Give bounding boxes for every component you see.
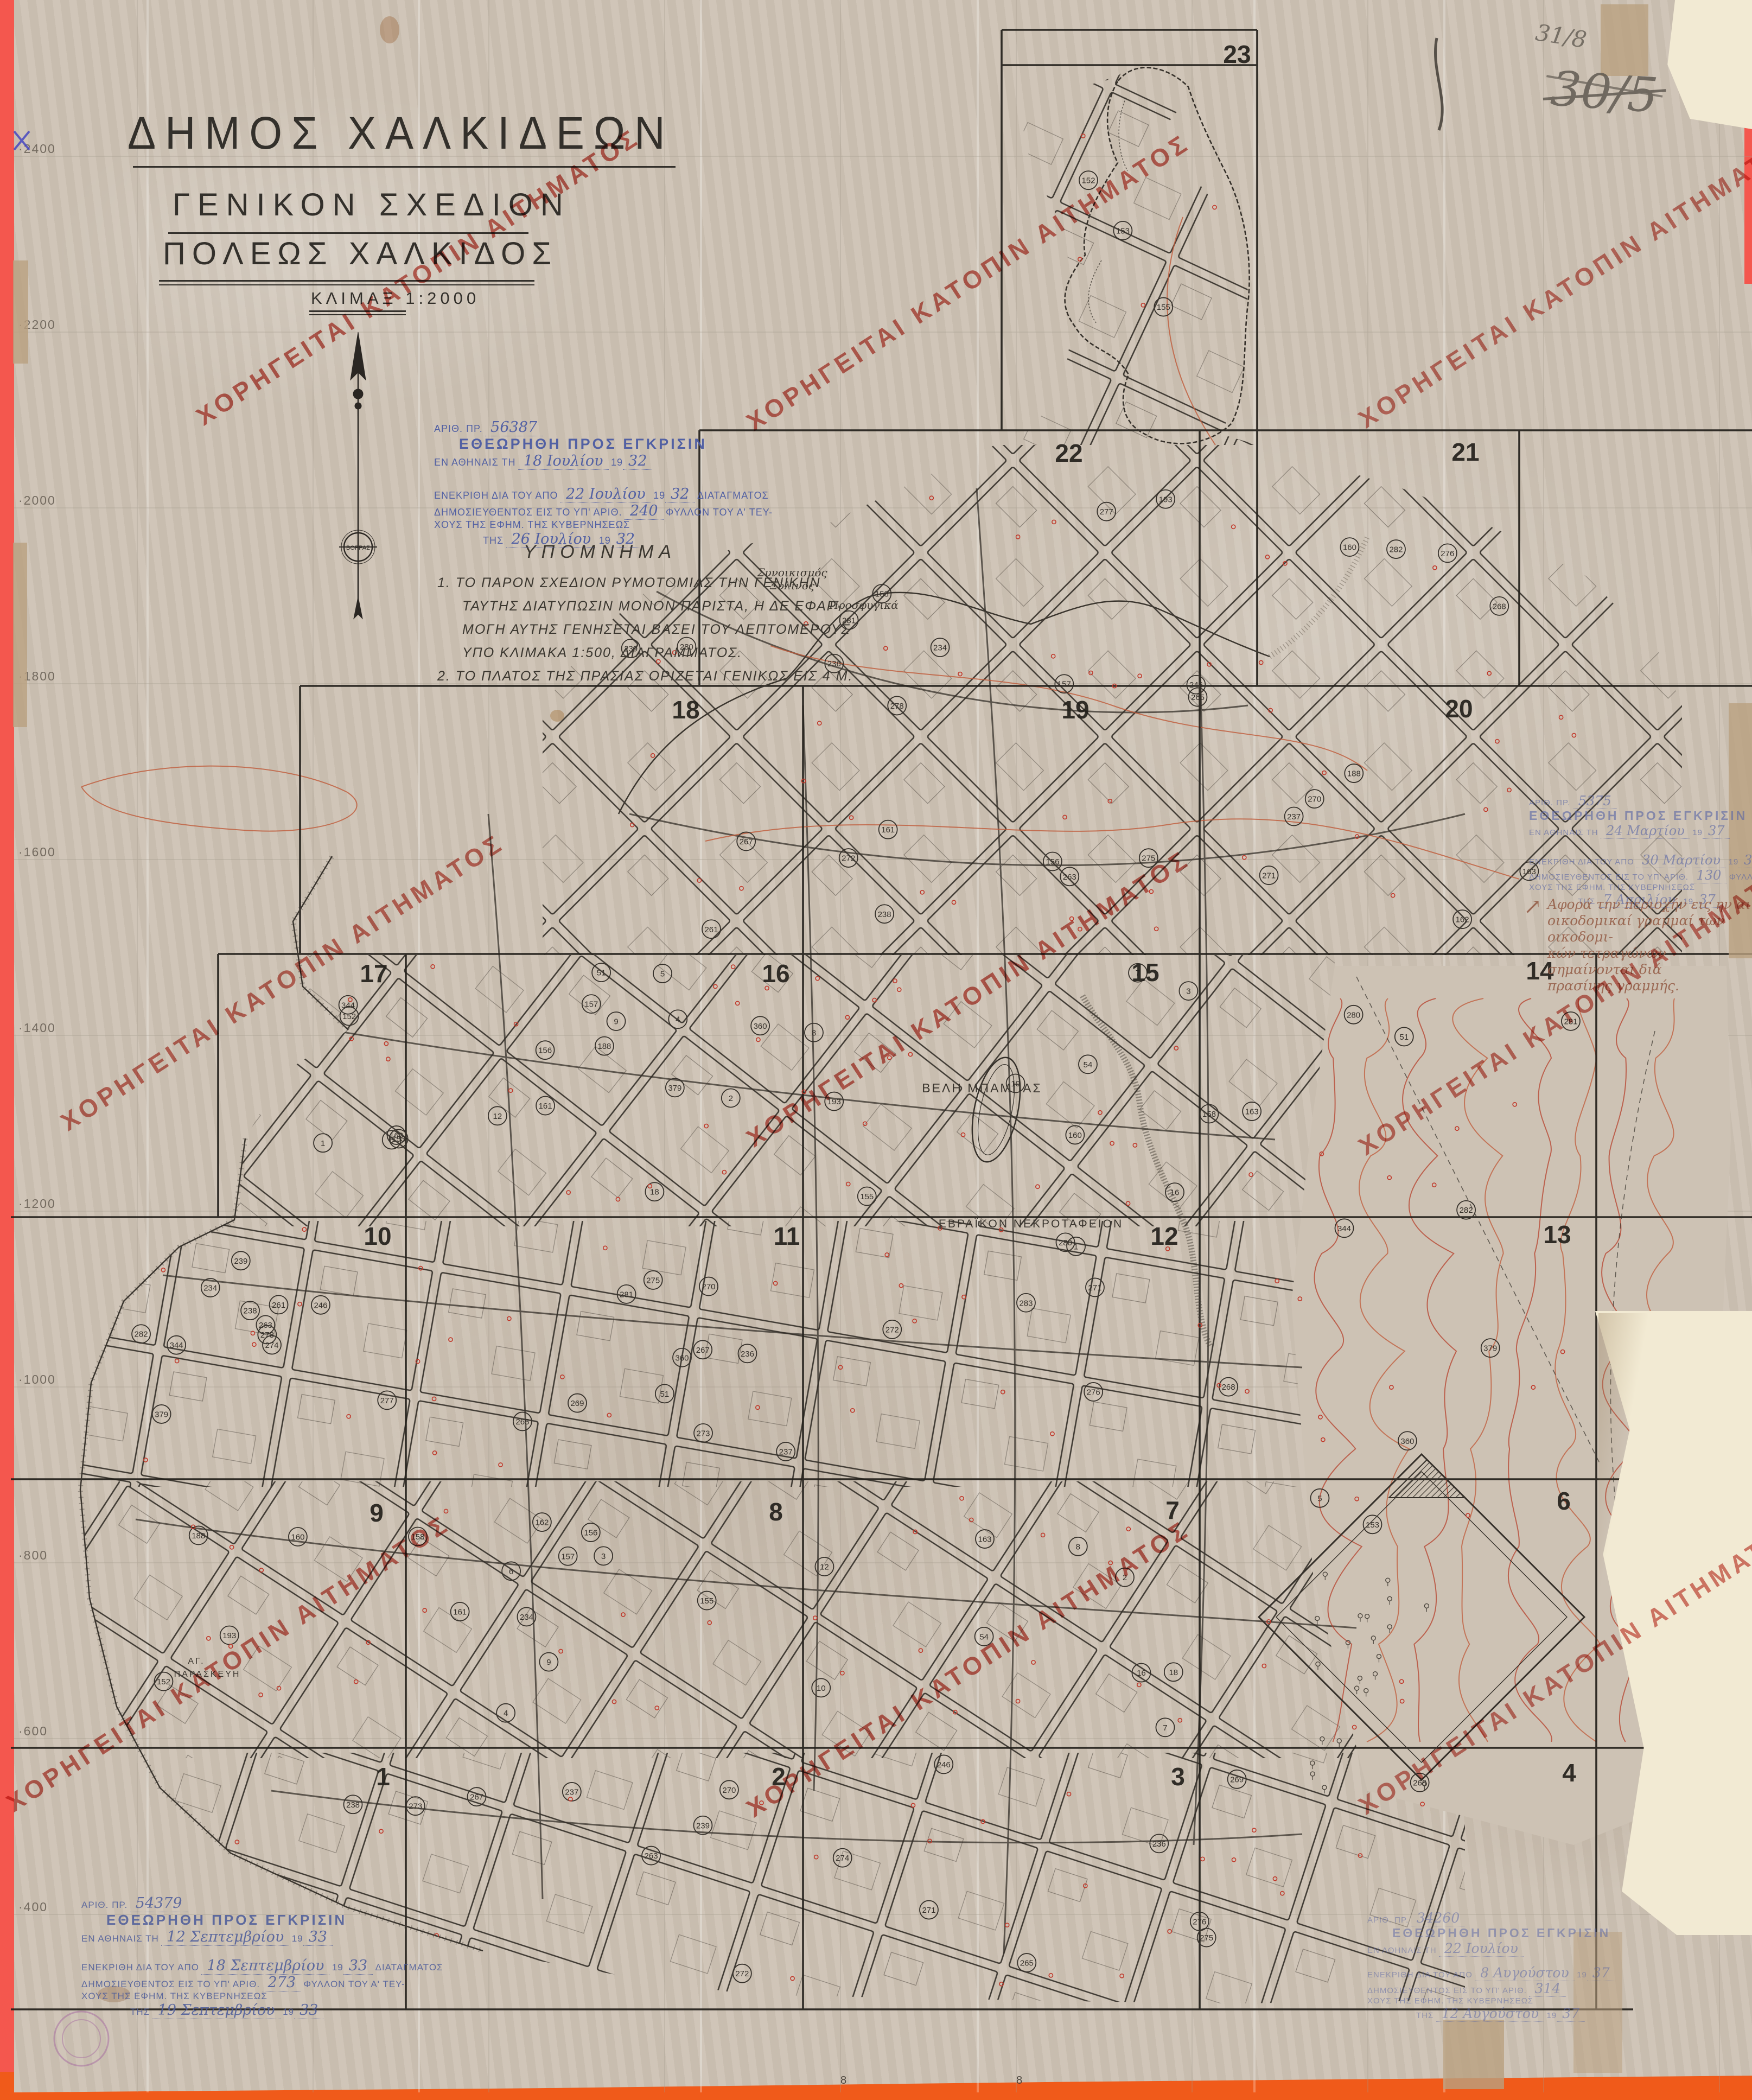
svg-text:344: 344 — [170, 1341, 183, 1350]
svg-text:278: 278 — [890, 702, 904, 711]
sheet-number: 20 — [1445, 695, 1473, 723]
stamp-number-label: ΑΡΙΘ. ΠΡ. — [434, 423, 483, 434]
stamp-sheet-label: ΦΥΛΛΟΝ ΤΟΥ Α' ΤΕΥ- — [666, 507, 773, 518]
svg-text:275: 275 — [1200, 1933, 1213, 1943]
stamp-review-date: 18 Ιουλίου — [518, 453, 609, 470]
stamp-approved-label: ΕΝΕΚΡΙΘΗ ΔΙΑ ΤΟΥ ΑΠΟ — [1529, 857, 1634, 867]
legend-line: ΜΟΓΗ ΑΥΤΗΣ ΓΕΝΗΣΕΤΑΙ ΒΑΣΕΙ ΤΟΥ ΛΕΠΤΟΜΕΡΟ… — [437, 618, 763, 641]
svg-text:246: 246 — [314, 1301, 327, 1310]
svg-text:155: 155 — [860, 1192, 874, 1201]
subtitle2-underline — [159, 280, 534, 282]
sheet-number: 3 — [1171, 1762, 1185, 1791]
svg-text:237: 237 — [565, 1787, 578, 1797]
svg-text:155: 155 — [700, 1596, 713, 1606]
sheet-number: 6 — [1557, 1487, 1571, 1515]
svg-text:272: 272 — [735, 1969, 749, 1978]
stamp-century: 19 — [611, 457, 623, 468]
stamp-date-label: ΤΗΣ — [1416, 2011, 1434, 2020]
stamp-review-year: 37 — [1703, 823, 1730, 839]
sheet-number: 17 — [360, 959, 387, 988]
svg-text:237: 237 — [1287, 812, 1301, 822]
svg-text:8: 8 — [812, 1028, 816, 1038]
svg-text:379: 379 — [668, 1084, 681, 1093]
svg-text:5: 5 — [660, 970, 665, 979]
stamp-century: 19 — [292, 1933, 303, 1944]
stamp-date-label: ΤΗΣ — [483, 535, 504, 546]
stamp-gazette-no: 240 — [625, 502, 664, 520]
svg-text:268: 268 — [1222, 1383, 1235, 1392]
svg-text:276: 276 — [1193, 1917, 1206, 1926]
grid-coordinate-label: ·1400 — [18, 1021, 56, 1035]
stamp-gazette-label: ΧΟΥΣ ΤΗΣ ΕΦΗΜ. ΤΗΣ ΚΥΒΕΡΝΗΣΕΩΣ — [1529, 883, 1746, 892]
legend-line: ΥΠΟ ΚΛΙΜΑΚΑ 1:500, ΔΙΑΓΡΑΜΜΑΤΟΣ. — [437, 641, 763, 665]
svg-text:16: 16 — [1137, 1669, 1146, 1678]
stamp-gazette-date: 19 Σεπτεμβρίου — [152, 2002, 281, 2019]
stamp-decree-date: 8 Αυγούστου — [1475, 1965, 1574, 1981]
svg-text:379: 379 — [1483, 1344, 1497, 1353]
sheet-number: 15 — [1131, 958, 1159, 987]
svg-text:239: 239 — [696, 1821, 710, 1830]
svg-text:265: 265 — [1191, 693, 1205, 702]
svg-text:273: 273 — [782, 501, 795, 510]
svg-text:157: 157 — [584, 1000, 598, 1009]
stamp-gazette-label: ΧΟΥΣ ΤΗΣ ΕΦΗΜ. ΤΗΣ ΚΥΒΕΡΝΗΣΕΩΣ — [434, 519, 684, 531]
svg-text:193: 193 — [1159, 495, 1173, 504]
sheet-number: 11 — [774, 1222, 800, 1250]
svg-text:161: 161 — [453, 1608, 467, 1617]
svg-text:163: 163 — [978, 1535, 991, 1544]
sheet-number: 22 — [1055, 439, 1082, 467]
svg-text:156: 156 — [1046, 857, 1059, 867]
approval-stamp-right: ΑΡΙΘ. ΠΡ. 5375 ΕΘΕΩΡΗΘΗ ΠΡΟΣ ΕΓΚΡΙΣΙΝ ΕΝ… — [1529, 793, 1746, 907]
stamp-gazette-no: 314 — [1529, 1981, 1566, 1997]
tape-patch — [13, 260, 28, 364]
svg-text:261: 261 — [483, 1975, 496, 1984]
svg-text:360: 360 — [1400, 1437, 1414, 1446]
stamp-review-date: 22 Ιουλίου — [1439, 1940, 1524, 1957]
sheet-number: 8 — [769, 1498, 783, 1526]
svg-text:4: 4 — [676, 1015, 680, 1024]
tape-patch — [13, 543, 27, 727]
svg-text:263: 263 — [1063, 873, 1076, 882]
svg-text:157: 157 — [1057, 680, 1071, 689]
svg-text:153: 153 — [1116, 226, 1130, 236]
stamp-reviewed-label: ΕΘΕΩΡΗΘΗ ΠΡΟΣ ΕΓΚΡΙΣΙΝ — [1367, 1926, 1622, 1940]
svg-text:239: 239 — [234, 1257, 247, 1266]
svg-text:280: 280 — [1347, 1010, 1360, 1020]
stamp-gazette-no: 273 — [263, 1974, 302, 1991]
svg-text:268: 268 — [1493, 602, 1506, 611]
svg-text:267: 267 — [470, 1793, 483, 1802]
stamp-approved-label: ΕΝΕΚΡΙΘΗ ΔΙΑ ΤΟΥ ΑΠΟ — [1367, 1970, 1473, 1980]
svg-text:18: 18 — [650, 1188, 659, 1197]
stamp-century: 19 — [1692, 828, 1703, 837]
svg-text:282: 282 — [1389, 545, 1403, 555]
svg-text:236: 236 — [1152, 1840, 1166, 1849]
sheet-number: 21 — [1451, 438, 1479, 466]
svg-text:188: 188 — [597, 1042, 611, 1051]
svg-text:261: 261 — [272, 1301, 285, 1310]
svg-text:9: 9 — [546, 1658, 551, 1667]
compass-label: ΒΟΡΡΑΣ — [346, 545, 370, 551]
stamp-number-label: ΑΡΙΘ. ΠΡ. — [1529, 798, 1570, 807]
stamp-century: 19 — [599, 535, 611, 546]
svg-text:12: 12 — [820, 1563, 829, 1572]
stamp-gazette-date: 26 Ιουλίου — [506, 531, 597, 548]
stamp-decree-year: 37 — [1738, 852, 1752, 868]
stamp-gazette-label: ΧΟΥΣ ΤΗΣ ΕΦΗΜ. ΤΗΣ ΚΥΒΕΡΝΗΣΕΩΣ — [81, 1991, 353, 2002]
svg-text:156: 156 — [538, 1046, 552, 1055]
svg-text:9: 9 — [614, 1017, 618, 1026]
svg-text:18: 18 — [1169, 1668, 1178, 1677]
sheet-number: 9 — [369, 1499, 384, 1527]
sheet-number: 23 — [1223, 40, 1251, 68]
svg-text:283: 283 — [1019, 1299, 1033, 1308]
stamp-century: 19 — [653, 490, 665, 501]
grid-coordinate-label: ·1200 — [18, 1197, 56, 1211]
svg-text:272: 272 — [885, 1325, 899, 1334]
svg-text:273: 273 — [409, 1802, 422, 1811]
svg-text:6: 6 — [509, 1567, 513, 1576]
legend-block: ΥΠΟΜΝΗΜΑ 1. ΤΟ ΠΑΡΟΝ ΣΧΕΔΙΟΝ ΡΥΜΟΤΟΜΙΑΣ … — [437, 542, 763, 688]
grid-coordinate-label: ·800 — [18, 1548, 48, 1562]
svg-text:271: 271 — [1262, 871, 1276, 881]
svg-text:7: 7 — [1163, 1723, 1167, 1733]
stamp-athens-label: ΕΝ ΑΘΗΝΑΙΣ ΤΗ — [434, 457, 515, 468]
svg-text:276: 276 — [1441, 549, 1454, 558]
svg-text:265: 265 — [1020, 1959, 1034, 1968]
svg-text:360: 360 — [675, 1353, 689, 1363]
svg-text:3: 3 — [601, 1552, 606, 1561]
grid-coordinate-label: 8 — [840, 2074, 846, 2086]
svg-text:188: 188 — [1347, 769, 1361, 779]
grid-coordinate-label: ·1600 — [18, 845, 56, 859]
stamp-reviewed-label: ΕΘΕΩΡΗΘΗ ΠΡΟΣ ΕΓΚΡΙΣΙΝ — [81, 1912, 353, 1929]
subtitle2-underline-2 — [159, 284, 534, 285]
svg-text:4: 4 — [504, 1709, 508, 1718]
svg-text:274: 274 — [836, 1854, 849, 1863]
pencil-annotation-crossed-out: 30/5 — [1549, 60, 1660, 124]
stamp-decree-year: 37 — [1587, 1965, 1615, 1981]
north-arrow: ΒΟΡΡΑΣ — [339, 332, 377, 619]
stamp-number-value: 34260 — [1411, 1910, 1466, 1926]
legend-line: ΤΑΥΤΗΣ ΔΙΑΤΥΠΩΣΙΝ ΜΟΝΟΝ ΠΑΡΙΣΤΑ, Η ΔΕ ΕΦ… — [437, 595, 763, 618]
sheet-number: 19 — [1061, 696, 1089, 724]
grid-coordinate-label: ·1000 — [18, 1372, 56, 1386]
svg-text:360: 360 — [754, 1022, 767, 1031]
sheet-number: 12 — [1150, 1222, 1178, 1250]
svg-text:277: 277 — [1100, 507, 1113, 517]
svg-text:267: 267 — [696, 1346, 710, 1355]
svg-text:160: 160 — [291, 1532, 304, 1542]
svg-text:160: 160 — [1068, 1131, 1082, 1140]
svg-text:3: 3 — [1186, 987, 1190, 996]
svg-text:153: 153 — [1366, 1520, 1379, 1530]
svg-text:344: 344 — [1337, 1224, 1351, 1233]
svg-text:51: 51 — [597, 969, 606, 978]
stamp-number-value: 56387 — [485, 419, 543, 436]
svg-text:152: 152 — [342, 1012, 356, 1021]
svg-text:281: 281 — [620, 1290, 633, 1299]
svg-text:277: 277 — [380, 1396, 394, 1405]
svg-text:188: 188 — [192, 1531, 205, 1541]
stamp-century: 19 — [1577, 1970, 1587, 1980]
stamp-athens-label: ΕΝ ΑΘΗΝΑΙΣ ΤΗ — [1529, 828, 1598, 837]
svg-text:238: 238 — [878, 910, 891, 919]
svg-text:12: 12 — [493, 1112, 502, 1121]
svg-text:51: 51 — [660, 1390, 670, 1399]
map-label: ΒΕΛΗ ΜΠΑΜΠΑΣ — [922, 1081, 1042, 1095]
stamp-review-year: 33 — [303, 1929, 333, 1946]
stamp-gazette-year: 32 — [611, 531, 640, 548]
svg-text:270: 270 — [702, 1282, 716, 1291]
svg-text:51: 51 — [1399, 1033, 1409, 1042]
svg-text:234: 234 — [203, 1283, 217, 1293]
svg-text:272: 272 — [842, 854, 855, 863]
stamp-gazette-year: 33 — [294, 2002, 323, 2019]
svg-text:16: 16 — [1170, 1188, 1180, 1198]
stamp-date-label: ΤΗΣ — [130, 2007, 150, 2017]
grid-coordinate-label: ·2000 — [18, 493, 56, 507]
svg-text:162: 162 — [1456, 915, 1469, 925]
stamp-gazette-no: 130 — [1691, 868, 1726, 883]
approval-stamp-bottom-right: ΑΡΙΘ. ΠΡ. 34260 ΕΘΕΩΡΗΘΗ ΠΡΟΣ ΕΓΚΡΙΣΙΝ Ε… — [1367, 1910, 1622, 2021]
svg-text:234: 234 — [933, 644, 947, 653]
svg-text:271: 271 — [1088, 1283, 1101, 1293]
svg-text:155: 155 — [1157, 303, 1170, 312]
sheet-number: 13 — [1543, 1220, 1571, 1249]
svg-text:269: 269 — [570, 1399, 584, 1408]
svg-text:162: 162 — [535, 1518, 549, 1528]
svg-text:275: 275 — [646, 1276, 660, 1285]
stamp-decree-year: 33 — [343, 1957, 373, 1975]
svg-text:162: 162 — [390, 1131, 403, 1140]
sheet-number: 1 — [376, 1762, 390, 1791]
stamp-sheet-label: ΦΥΛΛΟΝ ΤΟΥ Α' ΤΕΥ- — [304, 1979, 405, 1989]
svg-text:5: 5 — [1317, 1494, 1322, 1503]
stamp-gazette-label: ΧΟΥΣ ΤΗΣ ΕΦΗΜ. ΤΗΣ ΚΥΒΕΡΝΗΣΕΩΣ — [1367, 1996, 1622, 2006]
svg-text:234: 234 — [520, 1613, 533, 1622]
stamp-number-label: ΑΡΙΘ. ΠΡ. — [81, 1900, 128, 1910]
approval-stamp-bottom-left: ΑΡΙΘ. ΠΡ. 54379 ΕΘΕΩΡΗΘΗ ΠΡΟΣ ΕΓΚΡΙΣΙΝ Ε… — [81, 1895, 353, 2019]
stamp-athens-label: ΕΝ ΑΘΗΝΑΙΣ ΤΗ — [81, 1933, 159, 1944]
svg-text:270: 270 — [1308, 795, 1321, 804]
stamp-number-value: 54379 — [130, 1895, 188, 1912]
note-arrow-icon: ↗ — [1524, 899, 1542, 915]
svg-text:273: 273 — [696, 1429, 710, 1438]
sheet-number: 4 — [1562, 1759, 1576, 1787]
grid-coordinate-label: 8 — [1016, 2074, 1022, 2086]
stamp-review-date: 24 Μαρτίου — [1601, 823, 1690, 839]
svg-text:246: 246 — [937, 1760, 951, 1770]
svg-text:158: 158 — [1202, 1110, 1216, 1119]
stamp-decree-year: 32 — [665, 486, 695, 503]
stamp-number-label: ΑΡΙΘ. ΠΡ. — [1367, 1916, 1409, 1925]
svg-text:237: 237 — [779, 1447, 793, 1456]
stamp-approved-label: ΕΝΕΚΡΙΘΗ ΔΙΑ ΤΟΥ ΑΠΟ — [434, 490, 558, 501]
svg-text:238: 238 — [346, 1800, 360, 1810]
svg-text:283: 283 — [778, 485, 792, 494]
tape-patch — [1443, 2020, 1504, 2089]
stamp-century: 19 — [1728, 857, 1738, 867]
svg-text:158: 158 — [875, 590, 889, 599]
svg-text:161: 161 — [881, 825, 895, 835]
svg-text:54: 54 — [1023, 373, 1033, 383]
stamp-published-label: ΔΗΜΟΣΙΕΥΘΕΝΤΟΣ ΕΙΣ ΤΟ ΥΠ' ΑΡΙΘ. — [1529, 873, 1689, 882]
svg-text:238: 238 — [244, 1307, 257, 1316]
stamp-reviewed-label: ΕΘΕΩΡΗΘΗ ΠΡΟΣ ΕΓΚΡΙΣΙΝ — [434, 436, 684, 453]
svg-text:276: 276 — [1087, 1388, 1100, 1397]
legend-line: 2. ΤΟ ΠΛΑΤΟΣ ΤΗΣ ΠΡΑΣΙΑΣ ΟΡΙΖΕΤΑΙ ΓΕΝΙΚΩ… — [437, 665, 763, 688]
map-label: ΕΒΡΑΪΚΟΝ ΝΕΚΡΟΤΑΦΕΙΟΝ — [939, 1218, 1123, 1230]
grid-coordinate-label: ·400 — [18, 1900, 48, 1914]
svg-text:163: 163 — [1245, 1108, 1259, 1117]
stamp-gazette-year: 37 — [1557, 2006, 1585, 2022]
scanned-map-page: 5415215315515615715816016116216318819323… — [0, 0, 1752, 2100]
svg-text:265: 265 — [515, 1417, 529, 1427]
stamp-decree-date: 30 Μαρτίου — [1636, 852, 1726, 868]
svg-text:236: 236 — [741, 1350, 754, 1359]
svg-text:282: 282 — [1460, 1206, 1473, 1215]
svg-text:161: 161 — [539, 1102, 552, 1111]
svg-text:263: 263 — [645, 1851, 658, 1861]
stamp-published-label: ΔΗΜΟΣΙΕΥΘΕΝΤΟΣ ΕΙΣ ΤΟ ΥΠ' ΑΡΙΘ. — [81, 1979, 260, 1989]
stamp-century: 19 — [283, 2007, 294, 2017]
stamp-approved-label: ΕΝΕΚΡΙΘΗ ΔΙΑ ΤΟΥ ΑΠΟ — [81, 1962, 199, 1972]
stamp-reviewed-label: ΕΘΕΩΡΗΘΗ ΠΡΟΣ ΕΓΚΡΙΣΙΝ — [1529, 809, 1746, 823]
stamp-gazette-date: 12 Αυγούστου — [1436, 2006, 1544, 2022]
stamp-century: 19 — [332, 1962, 343, 1972]
sheet-number: 10 — [364, 1222, 391, 1250]
svg-text:2: 2 — [729, 1094, 733, 1103]
grid-coordinate-label: ·600 — [18, 1724, 48, 1738]
svg-text:270: 270 — [722, 1786, 736, 1795]
stamp-review-date: 12 Σεπτεμβρίου — [161, 1929, 289, 1946]
stamp-review-year: 32 — [623, 453, 652, 470]
svg-text:271: 271 — [922, 1906, 935, 1915]
svg-text:278: 278 — [543, 1971, 557, 1981]
sheet-number: 18 — [672, 696, 699, 724]
svg-text:1: 1 — [1074, 1242, 1078, 1251]
svg-text:236: 236 — [827, 659, 841, 669]
stamp-decree-label: ΔΙΑΤΑΓΜΑΤΟΣ — [697, 490, 769, 501]
svg-text:54: 54 — [1084, 1060, 1093, 1070]
stamp-decree-date: 18 Σεπτεμβρίου — [201, 1957, 329, 1975]
svg-text:1: 1 — [321, 1139, 325, 1148]
legend-line: 1. ΤΟ ΠΑΡΟΝ ΣΧΕΔΙΟΝ ΡΥΜΟΤΟΜΙΑΣ ΤΗΝ ΓΕΝΙΚ… — [437, 571, 763, 595]
svg-text:282: 282 — [135, 1330, 148, 1339]
svg-text:269: 269 — [1230, 1775, 1244, 1784]
svg-text:278: 278 — [260, 1331, 274, 1340]
stamp-number-value: 5375 — [1573, 793, 1617, 809]
svg-text:267: 267 — [740, 837, 753, 847]
svg-text:193: 193 — [222, 1631, 236, 1640]
svg-text:379: 379 — [155, 1410, 168, 1419]
svg-text:8: 8 — [1076, 1542, 1080, 1551]
svg-text:160: 160 — [1343, 543, 1356, 552]
stamp-published-label: ΔΗΜΟΣΙΕΥΘΕΝΤΟΣ ΕΙΣ ΤΟ ΥΠ' ΑΡΙΘ. — [1367, 1986, 1527, 1995]
stamp-decree-date: 22 Ιουλίου — [560, 486, 651, 503]
stamp-published-label: ΔΗΜΟΣΙΕΥΘΕΝΤΟΣ ΕΙΣ ΤΟ ΥΠ' ΑΡΙΘ. — [434, 507, 622, 518]
sheet-number: 16 — [762, 959, 789, 988]
stamp-decree-label: ΔΙΑΤΑΓΜΑΤΟΣ — [375, 1962, 443, 1972]
stamp-athens-label: ΕΝ ΑΘΗΝΑΙΣ ΤΗ — [1367, 1946, 1437, 1955]
svg-text:157: 157 — [561, 1552, 575, 1561]
svg-text:156: 156 — [584, 1528, 597, 1537]
svg-text:261: 261 — [704, 925, 718, 934]
svg-text:10: 10 — [817, 1684, 826, 1693]
approval-stamp-top: ΑΡΙΘ. ΠΡ. 56387 ΕΘΕΩΡΗΘΗ ΠΡΟΣ ΕΓΚΡΙΣΙΝ Ε… — [434, 419, 684, 548]
pencil-flourish — [1435, 38, 1442, 130]
stamp-century: 19 — [1547, 2011, 1557, 2020]
